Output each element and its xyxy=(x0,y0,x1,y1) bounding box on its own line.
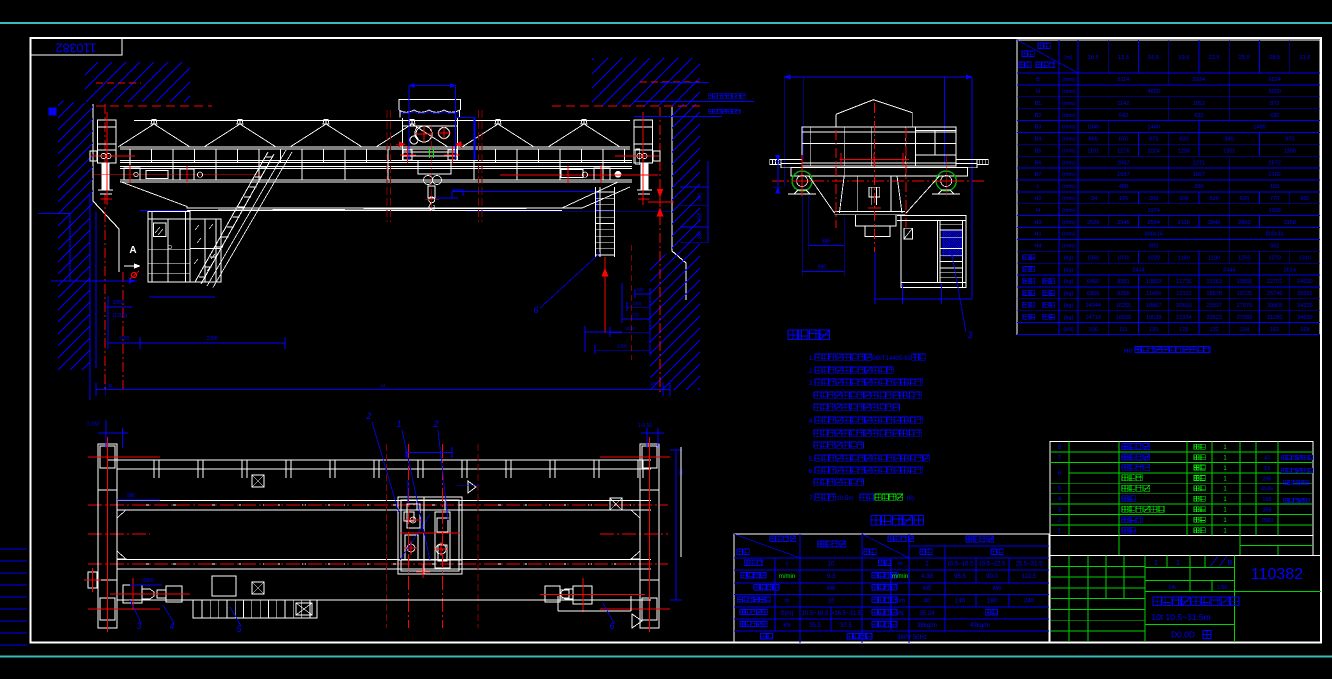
svg-text:2200: 2200 xyxy=(206,336,217,342)
svg-text:14t: 14t xyxy=(1168,585,1176,591)
svg-text:110382: 110382 xyxy=(56,41,97,55)
svg-text:10t 10.5~31.5m: 10t 10.5~31.5m xyxy=(1151,612,1210,622)
svg-text:40: 40 xyxy=(924,599,931,605)
svg-text:>16.5~31.5: >16.5~31.5 xyxy=(831,611,862,617)
svg-text:1.: 1. xyxy=(809,355,815,362)
svg-text:1256: 1256 xyxy=(1178,149,1190,155)
svg-text:125: 125 xyxy=(1179,327,1188,333)
svg-text:970: 970 xyxy=(1285,137,1294,143)
svg-text:306: 306 xyxy=(1179,196,1188,202)
svg-text:1160: 1160 xyxy=(1178,255,1190,261)
svg-text:132: 132 xyxy=(1210,327,1219,333)
svg-text:23523: 23523 xyxy=(1206,315,1222,321)
svg-text:m/min: m/min xyxy=(779,574,795,580)
svg-text:1070: 1070 xyxy=(1117,255,1129,261)
svg-text:1050: 1050 xyxy=(112,300,123,306)
svg-text:13110: 13110 xyxy=(1176,291,1191,297)
svg-text:mm: mm xyxy=(895,599,905,605)
svg-text:(mm): (mm) xyxy=(1062,137,1075,143)
svg-text:H: H xyxy=(1036,208,1040,214)
svg-text:B1: B1 xyxy=(1035,101,1042,107)
svg-text:2116: 2116 xyxy=(1178,220,1190,226)
svg-text:20669: 20669 xyxy=(1176,303,1192,309)
svg-text:90.0: 90.0 xyxy=(986,574,998,580)
svg-text:370: 370 xyxy=(631,313,639,318)
svg-text:(mm): (mm) xyxy=(1062,184,1075,190)
svg-text:(kg): (kg) xyxy=(1064,291,1074,297)
svg-text:5.: 5. xyxy=(809,456,815,463)
svg-text:162: 162 xyxy=(1270,327,1279,333)
svg-text:31.5: 31.5 xyxy=(1299,55,1310,61)
svg-text:10.5~16.5: 10.5~16.5 xyxy=(947,562,975,568)
svg-text:2594: 2594 xyxy=(1147,220,1159,226)
svg-text:980: 980 xyxy=(127,493,136,499)
svg-text:930: 930 xyxy=(1300,196,1309,202)
svg-text:B6: B6 xyxy=(1035,160,1042,166)
svg-text:602: 602 xyxy=(1149,244,1158,250)
svg-text:m/min: m/min xyxy=(892,574,908,580)
svg-text:180: 180 xyxy=(987,599,998,605)
svg-text:26655: 26655 xyxy=(1297,291,1313,297)
svg-text:6: 6 xyxy=(533,305,538,315)
svg-text:552: 552 xyxy=(1270,244,1279,250)
svg-text:800x16: 800x16 xyxy=(1145,232,1163,238)
svg-text:M6: M6 xyxy=(993,586,1002,592)
svg-text:25.5: 25.5 xyxy=(1239,55,1250,61)
svg-text:B2: B2 xyxy=(1035,113,1042,119)
svg-text:36: 36 xyxy=(107,383,113,388)
svg-text:(kN): (kN) xyxy=(1063,327,1074,333)
svg-text:19.5: 19.5 xyxy=(1178,55,1189,61)
svg-text:920: 920 xyxy=(1179,137,1188,143)
svg-text:1: 1 xyxy=(1176,560,1180,567)
svg-text:19.5~22.5: 19.5~22.5 xyxy=(979,562,1007,568)
svg-text:870: 870 xyxy=(1119,137,1128,143)
svg-text:1301: 1301 xyxy=(1223,149,1235,155)
svg-text:620: 620 xyxy=(1240,196,1249,202)
svg-text:18578: 18578 xyxy=(1206,291,1222,297)
svg-text:B: B xyxy=(1228,560,1233,567)
svg-text:16255: 16255 xyxy=(1116,303,1132,309)
svg-text:2271: 2271 xyxy=(1193,160,1205,166)
svg-text:1310: 1310 xyxy=(1299,255,1311,261)
svg-text:B5: B5 xyxy=(1035,149,1042,155)
svg-text:16608: 16608 xyxy=(1116,315,1132,321)
svg-text:872: 872 xyxy=(1270,101,1279,107)
svg-text:24600: 24600 xyxy=(1297,279,1313,285)
svg-text:800x16: 800x16 xyxy=(1266,232,1284,238)
svg-text:1060: 1060 xyxy=(1087,255,1099,261)
svg-text:2444: 2444 xyxy=(1223,267,1235,273)
svg-text:4.: 4. xyxy=(809,418,815,425)
svg-text:(25): (25) xyxy=(650,381,659,386)
svg-text:296: 296 xyxy=(1262,476,1271,482)
svg-text:B3: B3 xyxy=(1035,125,1042,131)
svg-text:488: 488 xyxy=(1119,184,1128,190)
svg-text:390: 390 xyxy=(698,193,704,202)
svg-text:(kg): (kg) xyxy=(1064,303,1074,309)
svg-text:GB/T14405-93: GB/T14405-93 xyxy=(872,356,912,362)
svg-text:1-0 10: 1-0 10 xyxy=(638,423,652,429)
svg-text:M6: M6 xyxy=(827,586,836,592)
svg-text:1191: 1191 xyxy=(1087,149,1099,155)
svg-text:H2: H2 xyxy=(1034,196,1041,202)
svg-text:11456: 11456 xyxy=(1146,291,1161,297)
svg-text:1:50: 1:50 xyxy=(1217,585,1228,591)
svg-text:H1: H1 xyxy=(1034,232,1041,238)
svg-text:1100: 1100 xyxy=(119,336,130,342)
svg-text:(mm): (mm) xyxy=(1062,220,1075,226)
svg-text:L: L xyxy=(1036,184,1039,190)
svg-text:(mm): (mm) xyxy=(1062,196,1075,202)
svg-text:(kg): (kg) xyxy=(1064,315,1074,321)
svg-text:150: 150 xyxy=(1270,184,1279,190)
svg-text:M5: M5 xyxy=(923,586,932,592)
svg-text:1024: 1024 xyxy=(1147,149,1159,155)
svg-text:3.: 3. xyxy=(809,380,815,387)
svg-text:13: 13 xyxy=(1264,466,1270,472)
svg-text:95.6: 95.6 xyxy=(954,574,966,580)
svg-text:1270: 1270 xyxy=(1268,255,1280,261)
svg-text:770: 770 xyxy=(1270,196,1279,202)
svg-text:1: 1 xyxy=(396,419,401,429)
svg-text:7560: 7560 xyxy=(1261,518,1273,524)
svg-text:1276: 1276 xyxy=(1117,149,1129,155)
svg-text:27576: 27576 xyxy=(1237,303,1253,309)
svg-text:120: 120 xyxy=(1149,327,1158,333)
svg-text:1537: 1537 xyxy=(1117,172,1129,178)
svg-text:380V 50Hz: 380V 50Hz xyxy=(897,635,927,641)
svg-text:35.24: 35.24 xyxy=(919,611,935,617)
svg-text:4850: 4850 xyxy=(1147,89,1159,95)
svg-text:19858: 19858 xyxy=(1237,279,1253,285)
svg-text:(20): (20) xyxy=(633,301,642,306)
svg-text:875: 875 xyxy=(1149,137,1158,143)
svg-text:2850: 2850 xyxy=(1238,220,1250,226)
svg-text:22701: 22701 xyxy=(1267,279,1283,285)
svg-text:112.5: 112.5 xyxy=(1022,574,1037,580)
svg-text:37.5: 37.5 xyxy=(840,623,852,629)
svg-text:1-150: 1-150 xyxy=(87,422,100,428)
svg-text:47: 47 xyxy=(1264,455,1270,461)
svg-text:-34: -34 xyxy=(1089,196,1097,202)
svg-text:(mm): (mm) xyxy=(1062,101,1075,107)
svg-text:1190: 1190 xyxy=(1208,255,1220,261)
svg-text:(mm): (mm) xyxy=(1062,244,1075,250)
svg-text:B4: B4 xyxy=(1035,137,1042,143)
svg-text:5000: 5000 xyxy=(1268,89,1280,95)
svg-text:31280: 31280 xyxy=(1267,315,1283,321)
svg-text:630: 630 xyxy=(1270,113,1279,119)
svg-text:(1200): (1200) xyxy=(113,313,128,319)
svg-text:10.5m: 10.5m xyxy=(837,496,854,502)
svg-text:(mm): (mm) xyxy=(1062,160,1075,166)
svg-text:206: 206 xyxy=(1149,196,1158,202)
svg-text:2572: 2572 xyxy=(1268,160,1280,166)
svg-text:28.5: 28.5 xyxy=(1269,55,1280,61)
svg-text:400: 400 xyxy=(636,287,644,292)
svg-text:4145: 4145 xyxy=(1261,487,1273,493)
svg-text:1974: 1974 xyxy=(1147,208,1159,214)
svg-text:1142: 1142 xyxy=(1117,101,1129,107)
svg-text:(250): (250) xyxy=(142,578,154,584)
svg-text:1926: 1926 xyxy=(1268,208,1280,214)
svg-text:890: 890 xyxy=(818,264,827,270)
svg-text:2434: 2434 xyxy=(1132,267,1144,273)
svg-text:2546: 2546 xyxy=(1117,220,1129,226)
svg-text:168: 168 xyxy=(1300,327,1309,333)
svg-text:4.38: 4.38 xyxy=(921,574,933,580)
svg-text:(kg): (kg) xyxy=(1064,279,1074,285)
svg-text:10869: 10869 xyxy=(1146,279,1162,285)
svg-text:34326: 34326 xyxy=(1297,303,1313,309)
svg-text:9.3: 9.3 xyxy=(827,574,836,580)
svg-text:(mm): (mm) xyxy=(1062,77,1075,83)
svg-text:632: 632 xyxy=(1194,113,1203,119)
svg-text:126: 126 xyxy=(1119,196,1128,202)
svg-text:865: 865 xyxy=(1089,137,1098,143)
svg-text:(mm): (mm) xyxy=(1062,208,1075,214)
svg-text:106: 106 xyxy=(1089,327,1098,333)
svg-text:6805: 6805 xyxy=(1087,291,1099,297)
svg-text:250: 250 xyxy=(1194,184,1203,190)
svg-text:19725: 19725 xyxy=(1237,291,1253,297)
svg-text:30905: 30905 xyxy=(1267,303,1283,309)
svg-text:16: 16 xyxy=(828,599,835,605)
svg-text:27089: 27089 xyxy=(1237,315,1253,321)
svg-text:(mm): (mm) xyxy=(1062,113,1075,119)
svg-text:43kg/m: 43kg/m xyxy=(970,623,990,629)
svg-text:945: 945 xyxy=(1225,137,1234,143)
svg-text:B2: B2 xyxy=(679,469,685,475)
svg-text:3158: 3158 xyxy=(1284,220,1296,226)
svg-text:154: 154 xyxy=(1240,327,1249,333)
svg-text:1040: 1040 xyxy=(1087,125,1099,131)
svg-text:(m): (m) xyxy=(1064,55,1072,61)
svg-text:kN: kN xyxy=(783,623,790,629)
svg-text:16.5: 16.5 xyxy=(1148,55,1159,61)
svg-text:845: 845 xyxy=(822,239,831,245)
svg-text:10.5: 10.5 xyxy=(1088,55,1099,61)
svg-text:(6).: (6). xyxy=(907,496,916,502)
svg-text:(mm): (mm) xyxy=(1062,172,1075,178)
svg-text:110382: 110382 xyxy=(1251,566,1303,583)
svg-text:5114: 5114 xyxy=(1117,77,1129,83)
svg-text:12736: 12736 xyxy=(1176,279,1192,285)
svg-text:3: 3 xyxy=(967,330,972,340)
svg-text:10: 10 xyxy=(828,562,835,568)
svg-text:(mm): (mm) xyxy=(1062,149,1075,155)
svg-text:1300: 1300 xyxy=(617,344,628,349)
svg-text:(kg): (kg) xyxy=(1064,255,1074,261)
svg-text:H3: H3 xyxy=(1034,220,1041,226)
svg-text:526: 526 xyxy=(1210,196,1219,202)
svg-text:140: 140 xyxy=(955,599,966,605)
svg-text:22.5: 22.5 xyxy=(1209,55,1220,61)
svg-text:15363: 15363 xyxy=(1206,279,1222,285)
svg-text:1100: 1100 xyxy=(625,326,635,331)
svg-text:35.5: 35.5 xyxy=(809,623,821,629)
svg-text:34650: 34650 xyxy=(1297,315,1313,321)
svg-text:1: 1 xyxy=(1154,560,1158,567)
svg-text:1657: 1657 xyxy=(1193,172,1205,178)
svg-text:6.: 6. xyxy=(809,468,815,475)
svg-text:2526: 2526 xyxy=(1087,220,1099,226)
svg-text:358: 358 xyxy=(1262,508,1271,514)
svg-text:6524: 6524 xyxy=(1268,77,1280,83)
svg-text:111: 111 xyxy=(1119,327,1128,333)
svg-text:1052: 1052 xyxy=(1193,101,1205,107)
svg-text:m: m xyxy=(898,562,903,568)
svg-text:542: 542 xyxy=(1119,113,1128,119)
svg-text:B: B xyxy=(1036,77,1040,83)
svg-text:A: A xyxy=(129,245,136,256)
svg-text:360: 360 xyxy=(698,231,704,240)
svg-text:23937: 23937 xyxy=(1206,303,1222,309)
svg-text:D0.0D: D0.0D xyxy=(1171,630,1195,640)
svg-text:2102: 2102 xyxy=(1268,172,1280,178)
svg-text:7.: 7. xyxy=(809,495,815,502)
svg-text:2.: 2. xyxy=(809,368,815,375)
svg-text:1485: 1485 xyxy=(1253,125,1265,131)
svg-text:S(m): S(m) xyxy=(781,611,794,617)
svg-text:s4: s4 xyxy=(381,383,386,388)
svg-text:2: 2 xyxy=(432,419,438,429)
svg-text:6450: 6450 xyxy=(1087,279,1099,285)
svg-text:19538: 19538 xyxy=(1146,315,1162,321)
svg-text:(mm): (mm) xyxy=(1062,232,1075,238)
svg-text:kN: kN xyxy=(896,611,903,617)
svg-text:1250: 1250 xyxy=(1238,255,1250,261)
svg-text:2: 2 xyxy=(365,411,371,421)
svg-text:(mm): (mm) xyxy=(1062,89,1075,95)
svg-text:H: H xyxy=(1036,89,1040,95)
svg-text:(mm): (mm) xyxy=(1062,125,1075,131)
svg-text:18867: 18867 xyxy=(1146,303,1162,309)
svg-text:240: 240 xyxy=(1024,599,1035,605)
svg-text:25746: 25746 xyxy=(1267,291,1283,297)
svg-text:2067: 2067 xyxy=(1117,160,1129,166)
svg-text:10.5~16.5: 10.5~16.5 xyxy=(802,611,830,617)
svg-text:(kg): (kg) xyxy=(1064,267,1074,273)
svg-text:38kg/m: 38kg/m xyxy=(917,623,937,629)
svg-text:13.5: 13.5 xyxy=(1118,55,1129,61)
svg-text:m: m xyxy=(785,599,790,605)
svg-text:1020: 1020 xyxy=(1147,255,1159,261)
svg-text:1440: 1440 xyxy=(1147,125,1159,131)
svg-text:H4: H4 xyxy=(1034,244,1041,250)
svg-text:5934: 5934 xyxy=(1193,77,1205,83)
svg-text:14344: 14344 xyxy=(1085,303,1101,309)
svg-text:8381: 8381 xyxy=(1117,279,1129,285)
svg-text:1306: 1306 xyxy=(1284,149,1296,155)
svg-text:B7: B7 xyxy=(1035,172,1042,178)
svg-text:2846: 2846 xyxy=(1208,220,1220,226)
svg-text:H0: H0 xyxy=(1124,348,1133,355)
svg-text:168: 168 xyxy=(1262,497,1271,503)
svg-text:9356: 9356 xyxy=(1117,291,1129,297)
svg-text:21034: 21034 xyxy=(1176,315,1192,321)
svg-text:2614: 2614 xyxy=(1284,267,1296,273)
svg-text:358: 358 xyxy=(698,213,704,222)
svg-text:14719: 14719 xyxy=(1085,315,1101,321)
svg-text:25.5~31.5: 25.5~31.5 xyxy=(1016,562,1044,568)
